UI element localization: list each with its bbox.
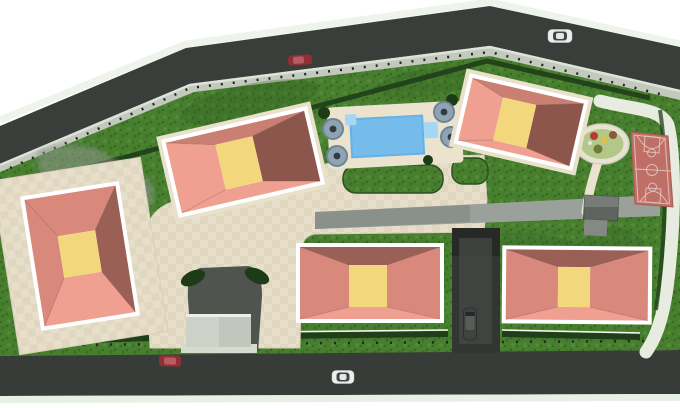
bush — [318, 107, 330, 119]
umbrella — [323, 119, 343, 139]
car-windshield — [466, 312, 475, 316]
play-equipment-olive — [594, 145, 603, 154]
pool-water-highlight — [351, 117, 423, 157]
building-4 — [296, 243, 444, 323]
pool-step — [423, 122, 438, 139]
play-equipment-yellow — [601, 137, 608, 144]
car-roof — [164, 357, 176, 364]
car-parked-ramp — [464, 308, 477, 340]
guard-house — [181, 314, 257, 353]
car-white-top — [548, 30, 572, 43]
bush — [423, 155, 433, 165]
pool-ladder-platform — [345, 114, 357, 126]
garage-ramp — [452, 228, 500, 353]
car-white-bottom — [332, 371, 354, 384]
car-roof — [293, 56, 304, 64]
grass-patch-below-pool — [343, 165, 443, 193]
car-red-bottom — [159, 355, 181, 367]
play-equipment-red — [590, 132, 598, 140]
umbrella — [434, 102, 454, 122]
shed-roof-highlight — [584, 195, 619, 209]
guard-house-roof-edge — [186, 314, 251, 317]
hedge-bottom-right — [502, 334, 640, 337]
building-1 — [20, 181, 140, 331]
roof-center — [558, 267, 590, 307]
site-plan-canvas — [0, 0, 680, 408]
building-5 — [502, 245, 653, 324]
play-equipment-brown — [609, 131, 617, 139]
car-roof — [556, 33, 564, 39]
guard-house-right-wing — [219, 316, 251, 347]
site-plan-render — [0, 0, 680, 408]
shed-annex — [584, 219, 608, 236]
car-cabin — [466, 315, 475, 330]
playground-lawn — [581, 129, 624, 159]
umbrella — [327, 146, 347, 166]
basketball-court — [631, 132, 673, 207]
car-red-top — [288, 54, 313, 66]
guard-house-left-wing — [186, 316, 219, 347]
roof-center — [349, 265, 387, 307]
car-roof — [340, 374, 347, 380]
play-equipment-white — [588, 141, 592, 145]
roof-center — [58, 230, 102, 277]
